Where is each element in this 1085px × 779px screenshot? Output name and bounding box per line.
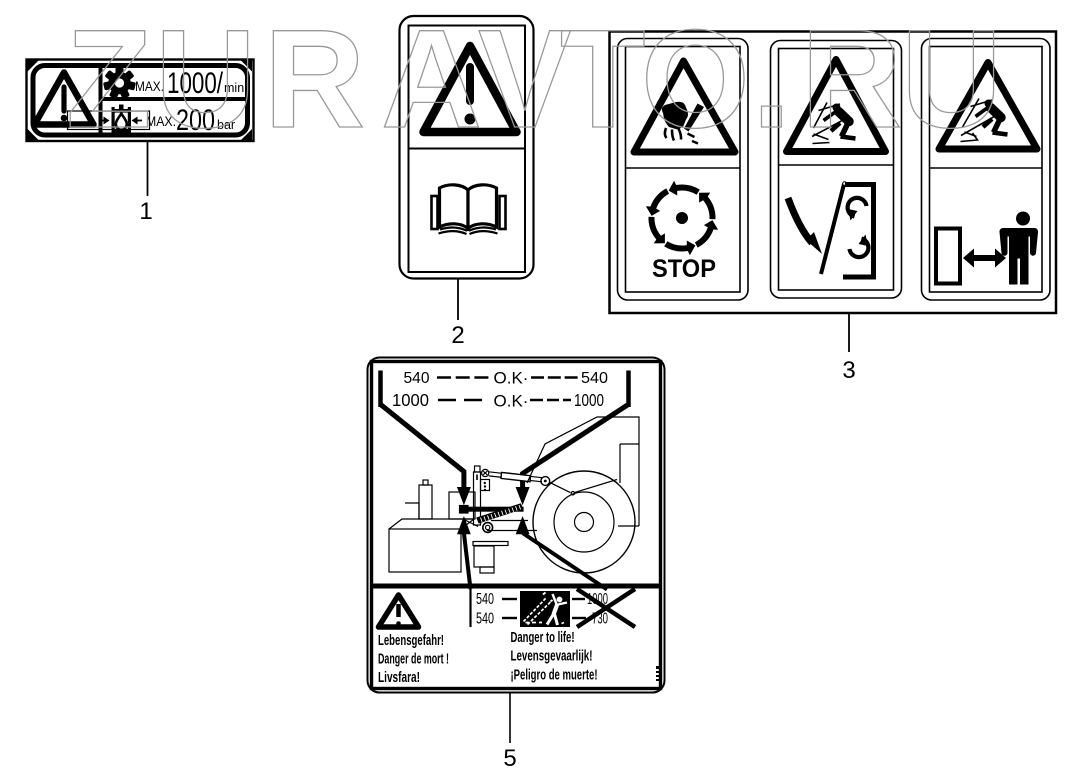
svg-text:STOP: STOP: [652, 255, 716, 283]
svg-text:1: 1: [139, 198, 152, 225]
svg-text:540: 540: [404, 370, 430, 387]
svg-text:1000: 1000: [574, 390, 604, 410]
svg-text:Livsfara!: Livsfara!: [378, 669, 420, 686]
svg-text:5: 5: [503, 745, 516, 772]
svg-text:540: 540: [476, 591, 494, 608]
svg-text:1000: 1000: [392, 390, 429, 410]
svg-text:540: 540: [476, 611, 494, 628]
svg-text:O.K·: O.K·: [494, 392, 529, 411]
svg-text:Lebensgefahr!: Lebensgefahr!: [378, 632, 444, 649]
svg-text:¡Peligro de muerte!: ¡Peligro de muerte!: [511, 667, 598, 684]
svg-text:O.K·: O.K·: [494, 369, 529, 388]
svg-text:Danger to life!: Danger to life!: [511, 629, 575, 646]
svg-text:2: 2: [451, 322, 464, 349]
svg-text:ZURAVTO.RU: ZURAVTO.RU: [66, 0, 1002, 157]
svg-text:Levensgevaarlijk!: Levensgevaarlijk!: [511, 648, 593, 665]
svg-text:Danger de mort !: Danger de mort !: [378, 651, 449, 668]
svg-text:540: 540: [581, 370, 608, 387]
svg-text:3: 3: [842, 357, 855, 384]
